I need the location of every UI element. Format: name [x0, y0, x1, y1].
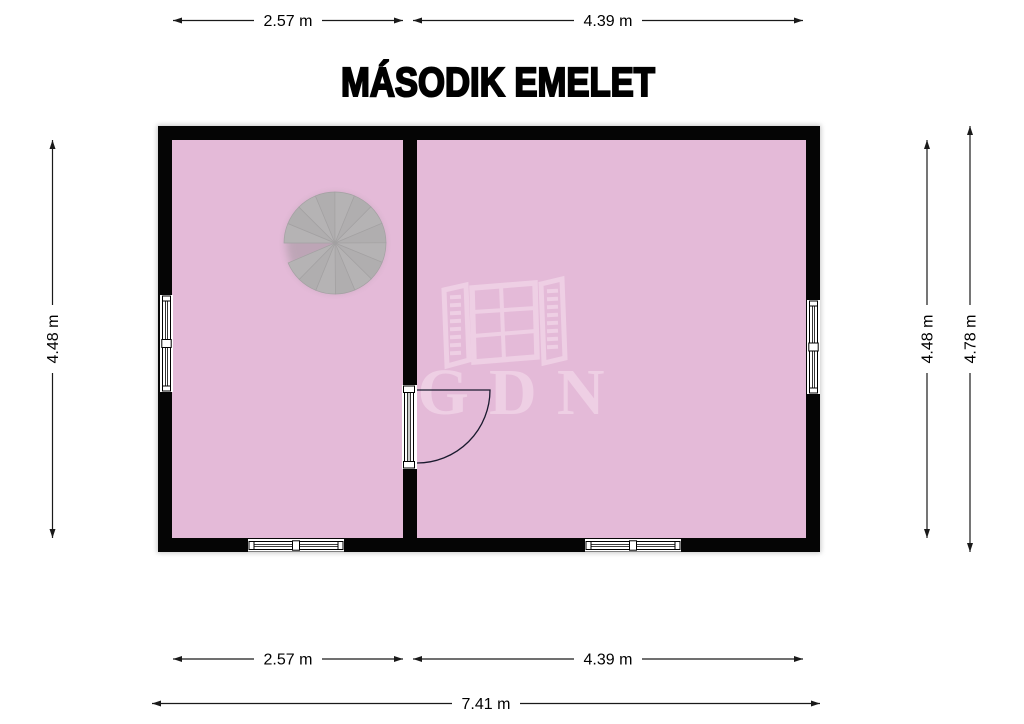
- svg-text:7.41 m: 7.41 m: [462, 696, 511, 713]
- svg-text:MÁSODIK EMELET: MÁSODIK EMELET: [341, 59, 655, 105]
- svg-text:4.78 m: 4.78 m: [963, 315, 980, 364]
- svg-text:4.48 m: 4.48 m: [45, 315, 62, 364]
- svg-text:2.57 m: 2.57 m: [264, 13, 313, 30]
- svg-text:4.39 m: 4.39 m: [584, 13, 633, 30]
- svg-text:2.57 m: 2.57 m: [264, 652, 313, 669]
- svg-text:4.48 m: 4.48 m: [920, 315, 937, 364]
- svg-text:GDN: GDN: [418, 356, 613, 429]
- svg-text:4.39 m: 4.39 m: [584, 652, 633, 669]
